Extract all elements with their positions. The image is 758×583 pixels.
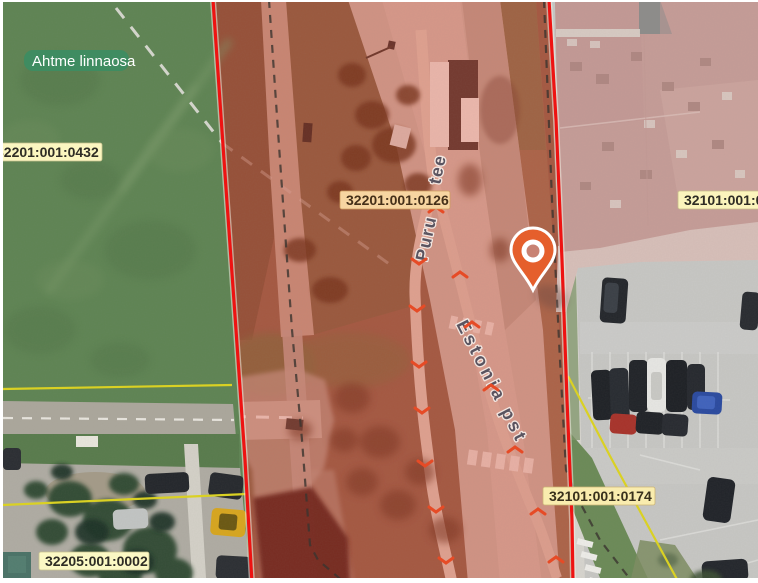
svg-text:32201:001:0432: 32201:001:0432	[0, 144, 99, 160]
svg-text:32101:001:01: 32101:001:01	[684, 192, 758, 208]
svg-text:32101:001:0174: 32101:001:0174	[549, 488, 652, 504]
svg-text:Ahtme linnaosa: Ahtme linnaosa	[32, 53, 136, 70]
svg-text:32201:001:0126: 32201:001:0126	[346, 192, 449, 208]
svg-text:32205:001:0002: 32205:001:0002	[45, 553, 148, 569]
